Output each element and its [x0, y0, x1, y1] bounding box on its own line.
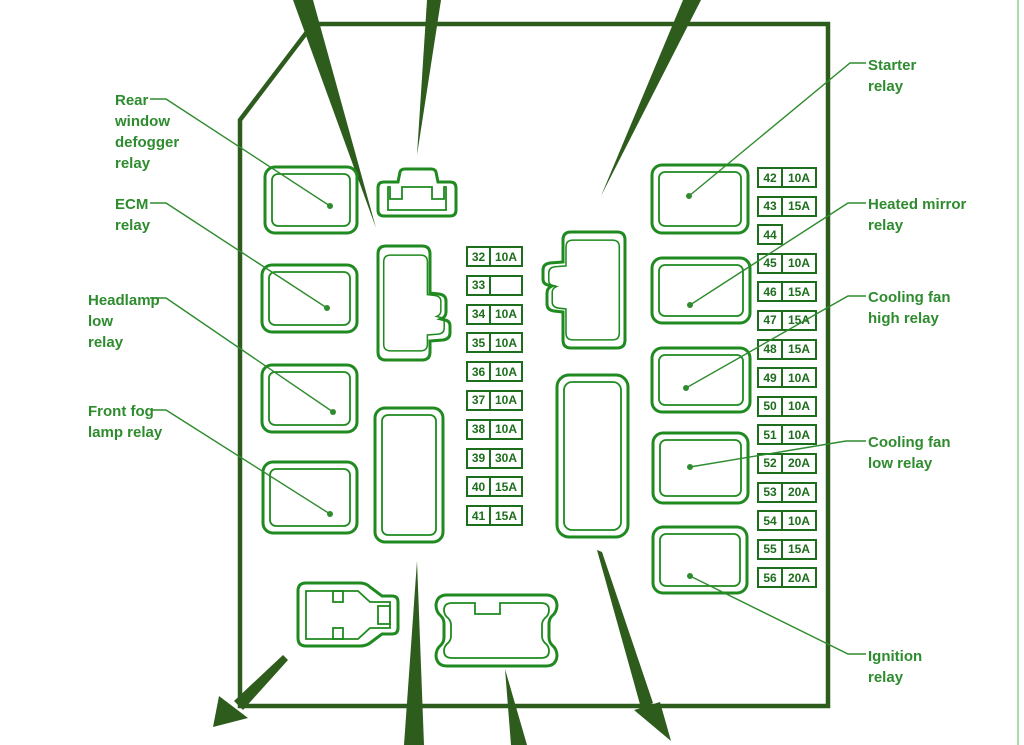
arrow-bottom-center-left	[404, 561, 424, 745]
fuse-row: 32 10A	[466, 246, 523, 267]
label-cooling-fan-high-relay: Cooling fan high relay	[868, 287, 951, 329]
fuse-amp-rating: 10A	[489, 246, 523, 267]
fuse-amp-rating: 10A	[489, 332, 523, 353]
fuse-number: 54	[757, 510, 783, 531]
relay-block-right	[557, 375, 628, 537]
fuse-row: 51 10A	[757, 424, 817, 445]
fuse-number: 53	[757, 482, 783, 503]
fuse-number: 34	[466, 304, 491, 325]
arrow-top-center	[417, 0, 441, 155]
relay-rear-window-defogger	[265, 167, 357, 233]
leader-headlamp-low	[150, 298, 336, 415]
locator-arrows	[213, 0, 701, 745]
label-heated-mirror-relay: Heated mirror relay	[868, 194, 966, 236]
fuse-amp-rating: 15A	[489, 505, 523, 526]
fuse-amp-rating: 15A	[781, 196, 817, 217]
arrow-bottom-right-head	[634, 702, 671, 741]
connector-bottom-center	[436, 595, 557, 666]
leader-ecm	[150, 203, 330, 311]
label-starter-relay: Starter relay	[868, 55, 916, 97]
label-headlamp-low-relay: Headlamp low relay	[88, 290, 160, 353]
relay-ignition	[653, 527, 747, 593]
fuse-number: 42	[757, 167, 783, 188]
fuse-row: 52 20A	[757, 453, 817, 474]
fuse-box-enclosure-outline	[240, 24, 828, 706]
fuse-amp-rating: 20A	[781, 453, 817, 474]
arrow-bottom-right-shaft	[597, 550, 653, 708]
fuse-row: 47 15A	[757, 310, 817, 331]
label-rear-window-defogger-relay: Rear window defogger relay	[115, 90, 179, 174]
fuse-column-center: 32 10A 33 34 10A 35 10A 36 10A 37 10A 38…	[466, 246, 523, 526]
fuse-number: 38	[466, 419, 491, 440]
relay-starter	[652, 165, 748, 233]
fuse-amp-rating: 10A	[489, 419, 523, 440]
fuse-row: 42 10A	[757, 167, 817, 188]
fuse-row: 44	[757, 224, 817, 245]
connector-bottom-left	[298, 583, 398, 646]
fuse-number: 48	[757, 339, 783, 360]
fuse-amp-rating: 15A	[781, 339, 817, 360]
fuse-number: 55	[757, 539, 783, 560]
fuse-number: 49	[757, 367, 783, 388]
fuse-amp-rating: 10A	[489, 390, 523, 411]
fuse-box-diagram: 32 10A 33 34 10A 35 10A 36 10A 37 10A 38…	[0, 0, 1024, 745]
relay-block-left	[375, 408, 443, 542]
fuse-amp-rating: 10A	[781, 167, 817, 188]
fuse-number: 35	[466, 332, 491, 353]
fuse-row: 45 10A	[757, 253, 817, 274]
fuse-row: 43 15A	[757, 196, 817, 217]
fuse-row: 49 10A	[757, 367, 817, 388]
label-front-fog-lamp-relay: Front fog lamp relay	[88, 401, 162, 443]
fuse-row: 56 20A	[757, 567, 817, 588]
fuse-number: 52	[757, 453, 783, 474]
fuse-row: 55 15A	[757, 539, 817, 560]
fuse-amp-rating	[489, 275, 523, 296]
fuse-number: 40	[466, 476, 491, 497]
fuse-row: 54 10A	[757, 510, 817, 531]
fuse-row: 53 20A	[757, 482, 817, 503]
fuse-amp-rating: 10A	[489, 304, 523, 325]
fuse-row: 48 15A	[757, 339, 817, 360]
relay-cooling-fan-high	[652, 348, 750, 412]
label-ecm-relay: ECM relay	[115, 194, 150, 236]
fuse-number: 46	[757, 281, 783, 302]
fuse-row: 35 10A	[466, 332, 523, 353]
fuse-amp-rating: 15A	[781, 281, 817, 302]
arrow-top-right	[601, 0, 701, 196]
fuse-row: 33	[466, 275, 523, 296]
fuse-amp-rating: 20A	[781, 482, 817, 503]
fuse-row: 38 10A	[466, 419, 523, 440]
fuse-amp-rating: 10A	[489, 361, 523, 382]
label-cooling-fan-low-relay: Cooling fan low relay	[868, 432, 951, 474]
fuse-row: 36 10A	[466, 361, 523, 382]
fuse-amp-rating: 10A	[781, 367, 817, 388]
fuse-number: 56	[757, 567, 783, 588]
relay-center-right-notched	[543, 232, 625, 348]
fuse-number: 43	[757, 196, 783, 217]
arrow-bottom-left-shaft	[234, 655, 288, 710]
fuse-number: 41	[466, 505, 491, 526]
fuse-number: 37	[466, 390, 491, 411]
fuse-column-right: 42 10A 43 15A 44 45 10A 46 15A 47 15A 48…	[757, 167, 817, 588]
fuse-number: 36	[466, 361, 491, 382]
relay-front-fog-lamp	[263, 462, 357, 533]
arrow-bottom-center	[505, 669, 527, 745]
fuse-amp-rating: 15A	[489, 476, 523, 497]
fuse-row: 40 15A	[466, 476, 523, 497]
fuse-row: 37 10A	[466, 390, 523, 411]
fuse-number: 44	[757, 224, 783, 245]
relay-cooling-fan-low	[653, 433, 748, 503]
fuse-row: 41 15A	[466, 505, 523, 526]
relay-ecm	[262, 265, 357, 332]
relay-center-left-notched	[378, 246, 450, 360]
fuse-amp-rating: 10A	[781, 424, 817, 445]
fuse-number: 51	[757, 424, 783, 445]
fuse-row: 46 15A	[757, 281, 817, 302]
fuse-number: 33	[466, 275, 491, 296]
fuse-amp-rating: 20A	[781, 567, 817, 588]
label-ignition-relay: Ignition relay	[868, 646, 922, 688]
fuse-amp-rating: 15A	[781, 310, 817, 331]
fuse-number: 45	[757, 253, 783, 274]
fuse-number: 47	[757, 310, 783, 331]
leader-front-fog	[152, 410, 333, 517]
fuse-number: 50	[757, 396, 783, 417]
fuse-number: 39	[466, 448, 491, 469]
fuse-row: 50 10A	[757, 396, 817, 417]
fuse-amp-rating: 15A	[781, 539, 817, 560]
fuse-amp-rating: 10A	[781, 510, 817, 531]
arrow-top-left	[293, 0, 376, 228]
connector-top	[378, 169, 456, 216]
fuse-amp-rating: 30A	[489, 448, 523, 469]
fuse-row: 39 30A	[466, 448, 523, 469]
fuse-number: 32	[466, 246, 491, 267]
fuse-amp-rating: 10A	[781, 396, 817, 417]
fuse-row: 34 10A	[466, 304, 523, 325]
relay-heated-mirror	[652, 258, 750, 323]
fuse-amp-rating: 10A	[781, 253, 817, 274]
relay-headlamp-low	[262, 365, 357, 432]
arrow-bottom-left-head	[213, 696, 248, 727]
